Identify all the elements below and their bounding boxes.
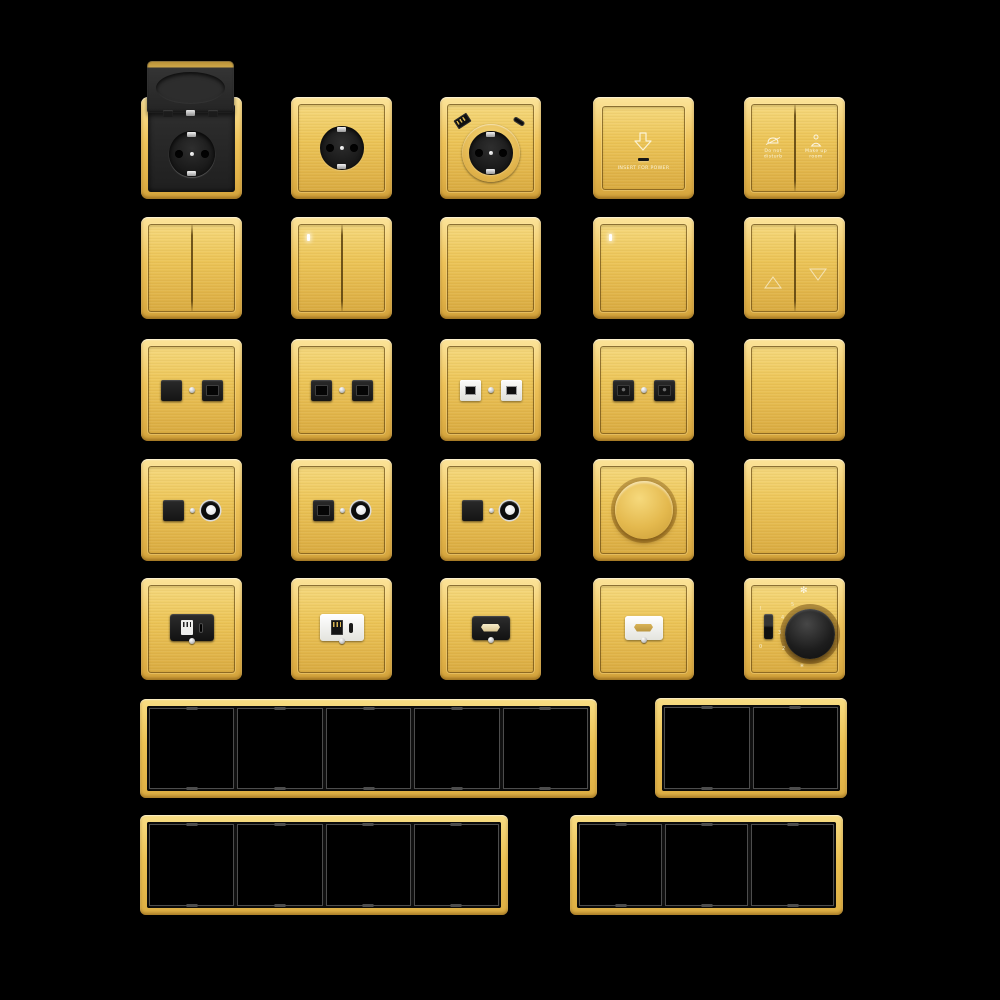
lid-oval-recess	[156, 72, 225, 104]
flip-cover-lid[interactable]	[147, 61, 234, 113]
arrow-down-icon	[631, 131, 655, 153]
screw	[189, 638, 195, 644]
socket-hole	[326, 144, 334, 152]
screw	[641, 637, 647, 643]
tv-data-socket[interactable]	[141, 339, 242, 441]
hdmi-socket-white[interactable]	[593, 578, 694, 680]
screw	[190, 508, 195, 513]
screw	[189, 387, 195, 393]
rj45-jack-white[interactable]	[501, 380, 522, 401]
fan-on-off-slider[interactable]	[764, 614, 773, 639]
curtain-up-icon[interactable]	[764, 275, 782, 290]
dial-mark: 2	[782, 646, 785, 652]
mur-label-line2: room	[810, 153, 823, 158]
tv-coax-socket[interactable]	[440, 459, 541, 561]
coax-connector[interactable]	[201, 501, 220, 520]
screw	[489, 508, 494, 513]
tv-data-coax-socket[interactable]	[141, 459, 242, 561]
frame-window	[414, 824, 499, 906]
card-switch-graphics: INSERT FOR POWER	[599, 131, 688, 174]
curtain-switch[interactable]	[744, 217, 845, 319]
dial-mark: 4	[781, 615, 784, 621]
hdmi-module	[625, 616, 663, 640]
data-socket-double-white[interactable]	[440, 339, 541, 441]
socket-black-insert	[148, 104, 235, 192]
fan-speed-knob[interactable]	[785, 609, 835, 659]
frame-window	[149, 824, 234, 906]
hdmi-socket-black[interactable]	[440, 578, 541, 680]
frame-window	[414, 708, 499, 789]
rocker-divider	[341, 225, 343, 311]
screw	[339, 387, 345, 393]
usb-charger-module	[320, 614, 364, 641]
switch-2gang[interactable]	[141, 217, 242, 319]
rj45-jack[interactable]	[352, 380, 373, 401]
usb-a-port-icon[interactable]	[181, 620, 193, 635]
tv-jack[interactable]	[462, 500, 483, 521]
dial-mark: 5	[791, 602, 794, 608]
usb-charger-module	[170, 614, 214, 641]
screw	[339, 638, 345, 644]
rj45-jack[interactable]	[311, 380, 332, 401]
fan-mark-icon: ✻	[800, 664, 804, 669]
socket-bezel	[462, 124, 520, 182]
schuko-socket[interactable]	[291, 97, 392, 199]
frame-interior	[662, 705, 840, 791]
make-up-room-icon	[808, 134, 824, 147]
hdmi-module	[472, 616, 510, 640]
do-not-disturb-icon	[764, 134, 782, 147]
fan-off-label: 0	[759, 644, 762, 650]
rotary-dimmer[interactable]	[593, 459, 694, 561]
frame-window	[664, 707, 750, 789]
socket-hole	[499, 149, 507, 157]
usb-c-port-icon[interactable]	[199, 623, 203, 633]
rocker-face[interactable]	[600, 224, 687, 312]
schuko-outlet[interactable]	[320, 126, 364, 170]
center-screw	[340, 146, 344, 150]
phone-socket-double[interactable]	[593, 339, 694, 441]
hdmi-port-icon[interactable]	[634, 624, 653, 632]
schuko-outlet[interactable]	[169, 131, 215, 177]
frame-3-gang[interactable]	[570, 815, 843, 915]
usb-charger-black[interactable]	[141, 578, 242, 680]
frame-window	[237, 708, 322, 789]
frame-interior	[577, 822, 836, 908]
led-indicator	[609, 234, 612, 241]
card-slot	[638, 158, 649, 161]
frame-window	[237, 824, 322, 906]
data-socket-double[interactable]	[291, 339, 392, 441]
usb-a-port-icon[interactable]	[331, 620, 343, 635]
screw	[641, 387, 647, 393]
earth-clip	[187, 132, 196, 137]
coax-connector[interactable]	[351, 501, 370, 520]
usb-c-port-icon[interactable]	[349, 623, 353, 633]
blank-plate[interactable]	[744, 459, 845, 561]
socket-hole	[201, 150, 209, 158]
earth-clip	[337, 127, 346, 132]
make-up-room-rocker[interactable]: Make up room	[795, 104, 839, 192]
rocker-face[interactable]	[447, 224, 534, 312]
frame-4-gang[interactable]	[140, 815, 508, 915]
frame-5-gang[interactable]	[140, 699, 597, 798]
frame-interior	[147, 706, 590, 791]
fan-speed-controller[interactable]: ✻ I 0 5 4 3 2 ✻	[744, 578, 845, 680]
tv-jack[interactable]	[163, 500, 184, 521]
frame-window	[753, 707, 839, 789]
frame-window	[326, 708, 411, 789]
screw	[488, 637, 494, 643]
fan-on-label: I	[759, 606, 760, 612]
rj45-jack[interactable]	[313, 500, 334, 521]
frame-2-gang[interactable]	[655, 698, 847, 798]
coax-connector[interactable]	[500, 501, 519, 520]
frame-window	[579, 824, 662, 906]
earth-clip	[486, 169, 495, 174]
product-collage: INSERT FOR POWER Do not disturb	[0, 0, 1000, 1000]
switch-1gang-led[interactable]	[593, 217, 694, 319]
led-indicator	[307, 234, 310, 241]
rocker-divider	[794, 225, 796, 311]
socket-with-flip-cover[interactable]	[141, 97, 242, 199]
data-coax-socket[interactable]	[291, 459, 392, 561]
socket-hole	[175, 150, 183, 158]
do-not-disturb-rocker[interactable]: Do not disturb	[751, 104, 795, 192]
earth-clip	[486, 132, 495, 137]
frame-window	[326, 824, 411, 906]
plate-face	[751, 466, 838, 554]
fan-icon: ✻	[800, 586, 808, 596]
dial-mark: 3	[778, 630, 781, 636]
frame-window	[751, 824, 834, 906]
dnd-label-line2: disturb	[763, 153, 782, 158]
tv-jack[interactable]	[161, 380, 182, 401]
frame-interior	[147, 822, 501, 908]
dimmer-knob[interactable]	[615, 481, 673, 539]
switch-1gang[interactable]	[440, 217, 541, 319]
earth-clip	[337, 164, 346, 169]
usb-charger-white[interactable]	[291, 578, 392, 680]
schuko-outlet[interactable]	[469, 131, 513, 175]
phone-jack[interactable]	[613, 380, 634, 401]
center-screw	[190, 152, 194, 156]
schuko-socket-usb[interactable]	[440, 97, 541, 199]
earth-clip	[187, 171, 196, 176]
card-power-switch[interactable]: INSERT FOR POWER	[593, 97, 694, 199]
hdmi-port-icon[interactable]	[481, 624, 500, 632]
curtain-down-icon[interactable]	[809, 267, 827, 282]
center-screw	[489, 151, 493, 155]
frame-window	[665, 824, 748, 906]
screw	[488, 387, 494, 393]
blank-plate[interactable]	[744, 339, 845, 441]
frame-window	[503, 708, 588, 789]
socket-hole	[350, 144, 358, 152]
card-switch-label: INSERT FOR POWER	[618, 165, 670, 170]
rj45-jack[interactable]	[202, 380, 223, 401]
screw	[340, 508, 345, 513]
lid-latch	[186, 110, 195, 116]
lid-hinge	[208, 110, 218, 117]
phone-jack[interactable]	[654, 380, 675, 401]
frame-window	[149, 708, 234, 789]
switch-2gang-led[interactable]	[291, 217, 392, 319]
plate-face	[751, 346, 838, 434]
rocker-divider	[191, 225, 193, 311]
rj45-jack-white[interactable]	[460, 380, 481, 401]
socket-hole	[475, 149, 483, 157]
hotel-service-switch[interactable]: Do not disturb Make up room	[744, 97, 845, 199]
lid-hinge	[163, 110, 173, 117]
